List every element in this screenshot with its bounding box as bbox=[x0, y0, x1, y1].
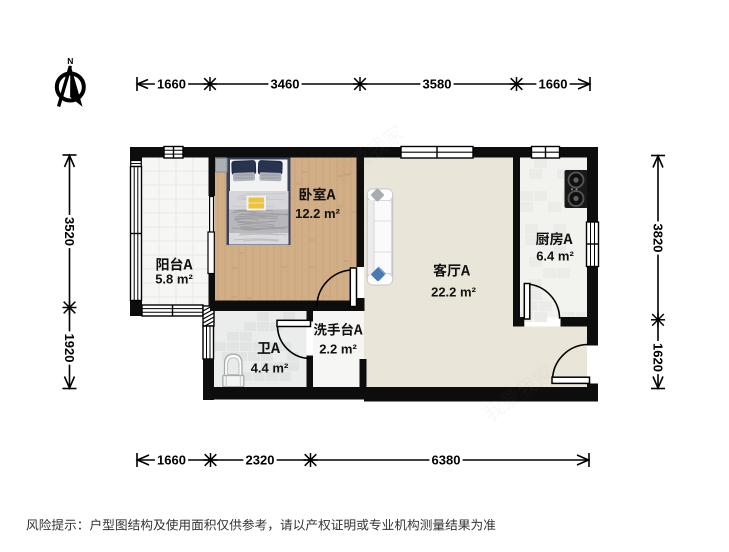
svg-text:12.2 m²: 12.2 m² bbox=[295, 206, 340, 221]
svg-text:2.2 m²: 2.2 m² bbox=[319, 342, 357, 357]
svg-text:2320: 2320 bbox=[246, 453, 275, 468]
svg-text:6380: 6380 bbox=[432, 453, 461, 468]
svg-text:1660: 1660 bbox=[157, 453, 186, 468]
svg-text:3580: 3580 bbox=[423, 77, 452, 92]
svg-text:1920: 1920 bbox=[62, 334, 77, 363]
svg-text:1660: 1660 bbox=[157, 77, 186, 92]
svg-text:3520: 3520 bbox=[62, 217, 77, 246]
svg-text:6.4 m²: 6.4 m² bbox=[536, 249, 574, 264]
svg-text:3460: 3460 bbox=[271, 77, 300, 92]
svg-text:N: N bbox=[67, 56, 73, 66]
svg-text:4.4 m²: 4.4 m² bbox=[251, 361, 289, 376]
svg-text:3820: 3820 bbox=[651, 224, 666, 253]
svg-text:1660: 1660 bbox=[539, 77, 568, 92]
svg-text:5.8 m²: 5.8 m² bbox=[155, 272, 193, 287]
svg-text:1620: 1620 bbox=[651, 343, 666, 372]
svg-text:22.2 m²: 22.2 m² bbox=[431, 285, 476, 300]
